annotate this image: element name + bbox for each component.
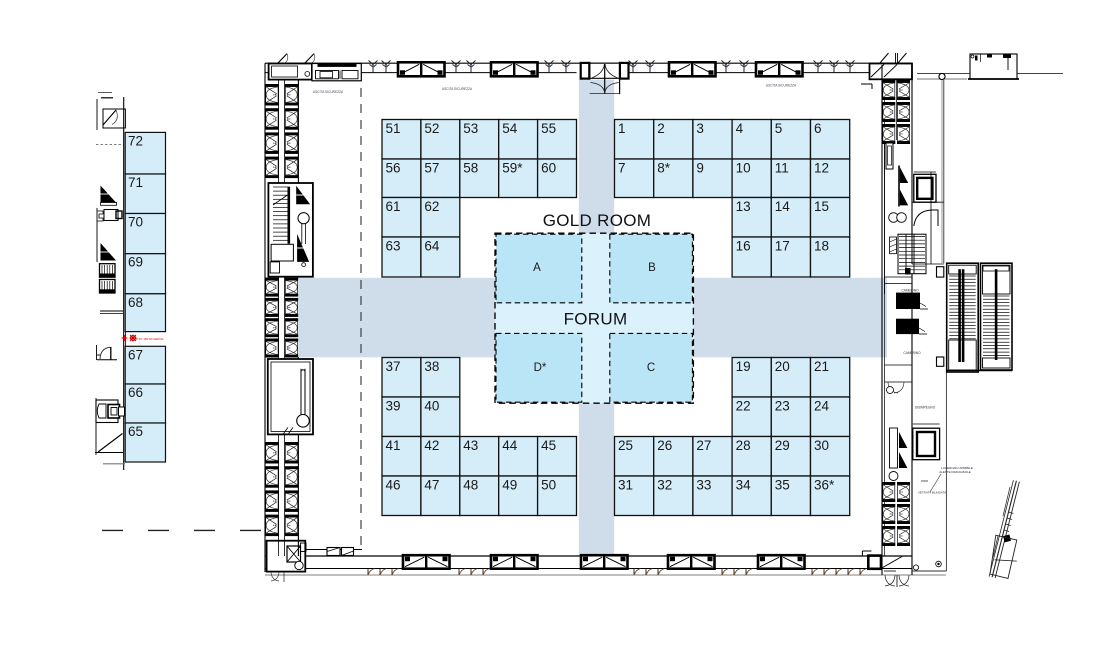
svg-text:53: 53 [463,121,478,136]
svg-text:65: 65 [128,424,143,439]
svg-text:FORUM: FORUM [564,310,628,329]
svg-text:58: 58 [463,161,478,176]
svg-text:29: 29 [775,438,790,453]
svg-text:19: 19 [736,359,751,374]
svg-text:66: 66 [128,385,143,400]
svg-text:27: 27 [696,438,711,453]
svg-text:22: 22 [736,399,751,414]
svg-text:USCITA SICUREZZA: USCITA SICUREZZA [313,90,344,94]
svg-text:3: 3 [696,121,704,136]
svg-text:47: 47 [424,478,439,493]
svg-text:37: 37 [386,359,401,374]
svg-text:B: B [648,262,656,274]
svg-text:61: 61 [386,199,401,214]
svg-text:VETRATA BLINDATA: VETRATA BLINDATA [918,491,946,495]
svg-text:18: 18 [814,239,829,254]
svg-text:40: 40 [424,399,439,414]
svg-text:48: 48 [463,478,478,493]
svg-text:45: 45 [541,438,556,453]
svg-text:10: 10 [736,161,751,176]
svg-text:68: 68 [128,295,143,310]
svg-text:7: 7 [618,161,626,176]
svg-text:33: 33 [696,478,711,493]
svg-text:24: 24 [814,399,830,414]
svg-text:21: 21 [814,359,829,374]
svg-text:70: 70 [128,215,143,230]
svg-text:69: 69 [128,255,143,270]
svg-text:26: 26 [657,438,672,453]
svg-text:56: 56 [386,161,401,176]
svg-text:62: 62 [424,199,439,214]
svg-text:32: 32 [657,478,672,493]
svg-text:9: 9 [696,161,704,176]
svg-text:CAMERINO: CAMERINO [901,289,919,293]
svg-text:55: 55 [541,121,556,136]
svg-text:72: 72 [128,133,143,148]
svg-text:50: 50 [541,478,556,493]
svg-text:11: 11 [775,161,789,176]
svg-text:D*: D* [534,362,547,374]
svg-text:41: 41 [386,438,401,453]
svg-text:4: 4 [736,121,744,136]
svg-text:CAMERINO: CAMERINO [903,351,921,355]
svg-text:60: 60 [541,161,556,176]
svg-text:39: 39 [386,399,401,414]
svg-text:17: 17 [775,239,790,254]
svg-text:54: 54 [502,121,518,136]
svg-text:42: 42 [424,438,439,453]
svg-text:52: 52 [424,121,439,136]
svg-text:25: 25 [618,438,633,453]
svg-text:8*: 8* [657,161,671,176]
svg-text:71: 71 [128,175,143,190]
svg-text:ALETTE FRANGISOLE: ALETTE FRANGISOLE [939,470,971,474]
svg-text:30: 30 [814,438,829,453]
svg-text:DISIMPEGNO: DISIMPEGNO [915,406,936,410]
svg-text:20: 20 [775,359,790,374]
svg-text:14: 14 [775,199,791,214]
svg-text:49: 49 [502,478,517,493]
svg-text:38: 38 [424,359,439,374]
svg-text:46: 46 [386,478,401,493]
svg-text:12: 12 [814,161,829,176]
svg-text:44: 44 [502,438,518,453]
svg-text:C: C [647,362,655,374]
svg-text:5: 5 [775,121,783,136]
svg-text:23: 23 [775,399,790,414]
svg-text:6: 6 [814,121,822,136]
svg-text:USCITA SICUREZZA: USCITA SICUREZZA [766,84,797,88]
svg-text:16: 16 [736,239,751,254]
svg-text:2: 2 [657,121,665,136]
svg-text:51: 51 [386,121,401,136]
svg-text:34: 34 [736,478,752,493]
svg-text:A: A [533,262,541,274]
svg-text:43: 43 [463,438,478,453]
svg-text:36*: 36* [814,478,835,493]
svg-text:15: 15 [814,199,829,214]
svg-text:63: 63 [386,239,401,254]
svg-text:35: 35 [775,478,790,493]
svg-text:64: 64 [424,239,440,254]
svg-text:57: 57 [424,161,439,176]
svg-text:28: 28 [736,438,751,453]
svg-text:GOLD ROOM: GOLD ROOM [543,211,652,230]
svg-text:13: 13 [736,199,751,214]
svg-text:67: 67 [128,347,143,362]
svg-text:31: 31 [618,478,633,493]
svg-text:USCITA SICUREZZA: USCITA SICUREZZA [442,87,473,91]
svg-text:P.TO 150 DN EROG.: P.TO 150 DN EROG. [136,337,164,341]
svg-text:59*: 59* [502,161,523,176]
svg-text:1: 1 [618,121,626,136]
